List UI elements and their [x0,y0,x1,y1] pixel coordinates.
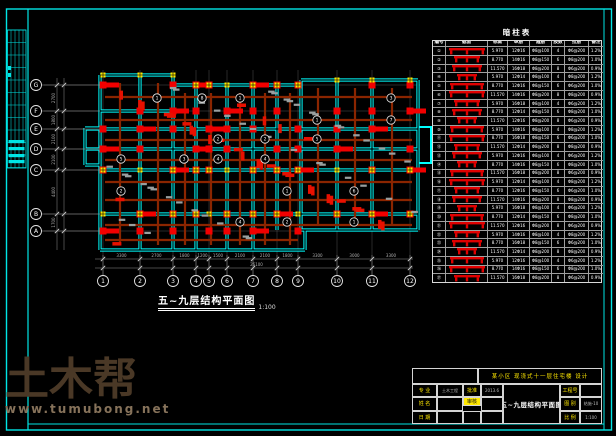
schedule-cell [446,274,488,282]
svg-text:6: 6 [353,189,356,195]
schedule-cell: Φ8@200 [565,143,589,152]
section-shape [452,65,482,72]
schedule-cell: 8.770 [488,266,508,275]
schedule-cell: 4 [552,47,565,56]
schedule-cell: 16Φ18 [508,135,530,144]
schedule-cell: Φ6@200 [565,222,589,231]
schedule-cell: Φ8@200 [530,274,552,282]
schedule-row: ⑯5.97012Φ14Φ8@1004Φ8@2001.2% [433,178,601,187]
schedule-cell: ② [433,56,446,65]
schedule-row: ⑧8.77012Φ14Φ8@1506Φ8@2001.0% [433,108,601,117]
title-block-cell: 2013.6 [481,384,503,397]
schedule-cell [446,161,488,170]
schedule-cell: 0.9% [589,91,603,100]
schedule-cell: Φ8@200 [530,222,552,231]
schedule-cell: Φ8@100 [530,204,552,213]
title-block-cell: 土木工程 [437,384,463,397]
schedule-cell [446,187,488,196]
schedule-cell [446,91,488,100]
schedule-cell: ⑤ [433,82,446,91]
section-shape [452,109,482,116]
section-shape [454,187,480,194]
schedule-cell: 8 [552,196,565,205]
section-shape [454,144,480,151]
watermark-brand: 土木帮 [5,358,170,402]
title-block-cell [580,384,602,397]
schedule-row: ⑳8.77012Φ14Φ8@1506Φ8@2001.0% [433,213,601,222]
svg-text:3300: 3300 [312,253,323,258]
watermark: 土木帮 www.tumubong.net [5,358,170,415]
schedule-cell: 8 [552,117,565,126]
schedule-cell: Φ6@200 [565,170,589,179]
schedule-cell: 8.770 [488,187,508,196]
schedule-cell: ㉒ [433,231,446,240]
schedule-row: ④5.97012Φ14Φ8@1004Φ8@2001.2% [433,73,601,82]
schedule-cell: 1.2% [589,178,603,187]
svg-text:4: 4 [264,157,267,163]
section-shape [450,214,484,221]
title-block-cell: 结施-10 [580,397,602,410]
schedule-cell: Φ6@200 [565,257,589,266]
svg-text:4400: 4400 [51,186,56,197]
schedule-cell: Φ8@100 [530,47,552,56]
title-block-cell: 图 别 [560,397,580,410]
svg-text:C: C [34,167,38,174]
svg-text:9: 9 [296,278,300,285]
schedule-cell [446,135,488,144]
schedule-cell: 8.770 [488,239,508,248]
svg-text:2700: 2700 [51,92,56,103]
schedule-cell [446,65,488,74]
svg-text:1800: 1800 [282,253,293,258]
schedule-cell: ⑯ [433,178,446,187]
schedule-cell: 5.970 [488,73,508,82]
schedule-row: ⑱11.57014Φ16Φ8@2008Φ8@2000.9% [433,196,601,205]
schedule-cell: 11.570 [488,170,508,179]
schedule-cell: ⑦ [433,100,446,109]
schedule-cell [446,248,488,257]
schedule-cell: 14Φ16 [508,196,530,205]
section-shape [449,179,485,186]
schedule-cell [446,108,488,117]
svg-text:4: 4 [217,157,220,163]
schedule-table: 编号截面标高纵筋箍筋肢数拉筋备注①5.97012Φ16Φ8@1004Φ6@200… [432,40,602,283]
schedule-cell [446,204,488,213]
schedule-cell: ① [433,47,446,56]
schedule-cell: Φ8@100 [530,178,552,187]
schedule-cell: ⑮ [433,170,446,179]
schedule-cell: 11.570 [488,143,508,152]
schedule-cell: 1.2% [589,126,603,135]
schedule-cell: Φ6@200 [565,152,589,161]
schedule-cell: 11.570 [488,117,508,126]
schedule-row: ⑪8.77016Φ18Φ8@1506Φ6@2001.0% [433,135,601,144]
schedule-cell: 11.570 [488,65,508,74]
schedule-cell: ⑧ [433,108,446,117]
schedule-row: ⑬5.97012Φ16Φ8@1004Φ6@2001.2% [433,152,601,161]
svg-text:1: 1 [316,118,319,124]
schedule-cell: Φ8@150 [530,82,552,91]
section-shape [457,161,477,168]
section-shape [454,231,480,238]
schedule-cell: Φ8@150 [530,266,552,275]
schedule-cell: Φ8@150 [530,108,552,117]
schedule-cell [446,257,488,266]
schedule-cell: 0.9% [589,143,603,152]
schedule-cell: Φ8@200 [565,231,589,240]
title-block-cell: 审核 [463,397,481,406]
schedule-cell: ③ [433,65,446,74]
svg-text:2: 2 [286,220,289,226]
schedule-cell: 6 [552,108,565,117]
svg-text:1800: 1800 [179,253,190,258]
schedule-cell: Φ8@200 [530,117,552,126]
title-block-blank [412,368,478,384]
schedule-cell: 12Φ16 [508,117,530,126]
svg-text:6: 6 [225,278,229,285]
svg-text:2: 2 [120,189,123,195]
title-block-cell [481,411,503,424]
dimension-layer: 3300270018001200150021002100180033003000… [51,78,413,270]
section-shape [452,152,482,159]
schedule-cell: 8.770 [488,213,508,222]
schedule-cell [446,239,488,248]
schedule-cell: 1.0% [589,108,603,117]
schedule-cell [446,143,488,152]
schedule-row: ㉗11.57016Φ18Φ8@2008Φ6@2000.9% [433,274,601,282]
title-block-cell: 1:100 [580,411,602,424]
schedule-cell: ㉔ [433,248,446,257]
schedule-cell: Φ8@150 [530,56,552,65]
schedule-cell: Φ8@100 [530,231,552,240]
schedule-cell [446,56,488,65]
schedule-cell: 11.570 [488,91,508,100]
schedule-cell: ⑬ [433,152,446,161]
schedule-cell: ⑱ [433,196,446,205]
section-shape [449,222,485,229]
schedule-row: ⑰8.77012Φ16Φ8@1506Φ6@2001.0% [433,187,601,196]
svg-text:1: 1 [286,189,289,195]
svg-text:7: 7 [251,278,255,285]
schedule-cell: 0.9% [589,65,603,74]
schedule-cell: ⑫ [433,143,446,152]
svg-text:26100: 26100 [250,262,263,267]
schedule-cell: Φ8@200 [565,248,589,257]
schedule-cell: Φ8@100 [530,126,552,135]
schedule-cell: ⑩ [433,126,446,135]
schedule-cell: ㉗ [433,274,446,282]
section-shape [450,257,484,264]
svg-text:2: 2 [217,137,220,143]
schedule-row: ㉒5.97014Φ16Φ8@1004Φ8@2001.2% [433,231,601,240]
schedule-cell: 12Φ14 [508,213,530,222]
schedule-cell: 1.0% [589,82,603,91]
schedule-row: ⑦5.97016Φ18Φ8@1004Φ6@2001.2% [433,100,601,109]
schedule-cell: Φ8@200 [565,91,589,100]
schedule-cell: ㉖ [433,266,446,275]
svg-text:D: D [34,146,39,153]
schedule-cell [446,196,488,205]
schedule-cell: 5.970 [488,231,508,240]
schedule-cell: 4 [552,126,565,135]
schedule-cell [446,47,488,56]
schedule-cell: 16Φ18 [508,204,530,213]
schedule-cell: Φ8@200 [565,108,589,117]
schedule-cell: 4 [552,73,565,82]
schedule-row: ㉓8.77016Φ18Φ8@1506Φ6@2001.0% [433,239,601,248]
schedule-cell: 1.2% [589,152,603,161]
schedule-cell: 6 [552,82,565,91]
schedule-cell: 1.0% [589,266,603,275]
schedule-cell: 6 [552,161,565,170]
schedule-cell: 14Φ16 [508,231,530,240]
svg-text:2700: 2700 [151,253,162,258]
schedule-cell: 8 [552,143,565,152]
schedule-cell: ⑨ [433,117,446,126]
schedule-cell: Φ8@150 [530,161,552,170]
svg-text:8: 8 [201,96,204,102]
plan-title: 五~九层结构平面图 [158,292,255,311]
schedule-cell: 8.770 [488,108,508,117]
schedule-cell: 1.0% [589,56,603,65]
svg-text:2: 2 [138,278,142,285]
section-shape [457,117,477,124]
schedule-cell [446,231,488,240]
schedule-cell [446,266,488,275]
schedule-cell: Φ8@200 [530,248,552,257]
schedule-row: ②8.77014Φ16Φ8@1506Φ8@2001.0% [433,56,601,65]
marker-layer [101,73,413,217]
schedule-row: ①5.97012Φ16Φ8@1004Φ6@2001.2% [433,47,601,56]
svg-text:3: 3 [390,96,393,102]
section-shape [452,240,482,247]
schedule-cell: 6 [552,266,565,275]
schedule-cell: 12Φ16 [508,187,530,196]
title-block-cell [463,411,481,424]
svg-text:10: 10 [333,278,341,285]
svg-text:3: 3 [171,278,175,285]
schedule-cell [446,213,488,222]
schedule-cell: 1.2% [589,231,603,240]
svg-text:1500: 1500 [213,253,224,258]
schedule-cell: 0.9% [589,222,603,231]
svg-text:3300: 3300 [116,253,127,258]
section-shape [452,196,482,203]
svg-text:3: 3 [183,157,186,163]
schedule-cell: 0.9% [589,248,603,257]
schedule-cell: 8 [552,65,565,74]
schedule-cell: Φ6@200 [565,239,589,248]
schedule-cell: ⑭ [433,161,446,170]
schedule-cell: 1.2% [589,73,603,82]
drawing-name: 五~九层结构平面图 [503,384,560,424]
schedule-cell: 6 [552,56,565,65]
section-shape [457,205,477,212]
schedule-cell [446,126,488,135]
schedule-cell: 8 [552,248,565,257]
svg-text:1: 1 [239,96,242,102]
schedule-cell: 6 [552,187,565,196]
schedule-cell: 12Φ16 [508,257,530,266]
schedule-cell: Φ6@200 [565,117,589,126]
svg-text:5: 5 [120,157,123,163]
schedule-cell: Φ6@200 [565,204,589,213]
title-block-cell [481,397,503,410]
schedule-cell: Φ8@200 [565,178,589,187]
title-block-cell: 姓 名 [412,397,437,410]
schedule-cell: 16Φ18 [508,274,530,282]
svg-text:2: 2 [264,137,267,143]
schedule-cell: 11.570 [488,274,508,282]
svg-text:1: 1 [101,278,105,285]
schedule-cell: 8.770 [488,82,508,91]
svg-text:E: E [34,126,38,133]
svg-text:11: 11 [368,278,376,285]
schedule-cell: Φ8@150 [530,239,552,248]
schedule-cell: Φ8@100 [530,257,552,266]
schedule-cell: Φ8@200 [565,213,589,222]
schedule-cell: 14Φ16 [508,91,530,100]
svg-text:4: 4 [194,278,198,285]
svg-text:F: F [34,108,38,115]
schedule-cell: 8 [552,222,565,231]
schedule-cell: 8 [552,91,565,100]
schedule-cell: ⑰ [433,187,446,196]
svg-text:3300: 3300 [386,253,397,258]
schedule-cell [446,82,488,91]
title-block-cell: 日 期 [412,411,437,424]
schedule-cell: 12Φ14 [508,248,530,257]
schedule-cell: Φ8@200 [530,65,552,74]
schedule-cell [446,222,488,231]
schedule-row: ⑭8.77014Φ16Φ8@1506Φ8@2001.0% [433,161,601,170]
schedule-cell: ⑳ [433,213,446,222]
schedule-cell: 1.0% [589,239,603,248]
schedule-cell: ⑲ [433,204,446,213]
schedule-cell: Φ8@100 [530,152,552,161]
schedule-cell: 4 [552,152,565,161]
plan-caption: 五~九层结构平面图 1:100 [158,292,276,311]
schedule-cell: 8.770 [488,161,508,170]
schedule-cell: Φ8@200 [565,126,589,135]
schedule-cell: Φ8@200 [565,161,589,170]
svg-text:2100: 2100 [235,253,246,258]
svg-text:1800: 1800 [51,114,56,125]
section-shape [454,100,480,107]
schedule-cell: Φ6@200 [565,47,589,56]
schedule-cell [446,170,488,179]
title-block-cell: 比 例 [560,411,580,424]
section-shape [449,135,485,142]
svg-text:7: 7 [390,118,393,124]
schedule-cell: Φ8@150 [530,213,552,222]
svg-text:2100: 2100 [260,253,271,258]
schedule-cell: ㉕ [433,257,446,266]
title-block-cell: 工程号 [560,384,580,397]
plan-scale: 1:100 [258,304,275,311]
schedule-cell: ⑥ [433,91,446,100]
svg-text:12: 12 [406,278,414,285]
schedule-cell: Φ6@200 [565,187,589,196]
schedule-cell: 0.9% [589,170,603,179]
schedule-cell: Φ8@200 [530,91,552,100]
drawing-sheet: 3300270018001200150021002100180033003000… [0,0,616,436]
schedule-cell [446,117,488,126]
svg-text:1700: 1700 [51,217,56,228]
schedule-cell [446,152,488,161]
schedule-cell: 5.970 [488,204,508,213]
schedule-cell: Φ8@200 [565,56,589,65]
schedule-cell: 16Φ18 [508,100,530,109]
watermark-url: www.tumubong.net [5,403,170,415]
schedule-cell: 1.0% [589,187,603,196]
schedule-cell: 4 [552,257,565,266]
schedule-cell: 16Φ18 [508,170,530,179]
schedule-cell: 5.970 [488,178,508,187]
schedule-cell: 8.770 [488,56,508,65]
schedule-cell: 1.0% [589,135,603,144]
svg-text:B: B [34,211,38,218]
schedule-cell: 1.2% [589,100,603,109]
schedule-cell: 8.770 [488,135,508,144]
schedule-cell: 12Φ16 [508,222,530,231]
schedule-cell: 4 [552,178,565,187]
svg-text:5: 5 [316,137,319,143]
schedule-row: ㉔11.57012Φ14Φ8@2008Φ8@2000.9% [433,248,601,257]
schedule-cell: 14Φ16 [508,266,530,275]
schedule-cell: 11.570 [488,196,508,205]
schedule-cell: 5.970 [488,257,508,266]
schedule-cell: 5.970 [488,47,508,56]
schedule-cell [446,178,488,187]
schedule-cell: 4 [552,204,565,213]
schedule-cell: Φ8@200 [530,143,552,152]
svg-text:4: 4 [239,220,242,226]
svg-text:2100: 2100 [51,133,56,144]
schedule-row: ③11.57016Φ18Φ8@2008Φ6@2000.9% [433,65,601,74]
schedule-cell: 12Φ14 [508,143,530,152]
project-name: 某小区 现浇式十一层住宅楼 设计 [478,368,602,384]
title-block-cell [437,397,463,410]
section-shape [450,83,484,90]
schedule-cell: 14Φ16 [508,126,530,135]
schedule-cell: 11.570 [488,222,508,231]
schedule-cell: 0.9% [589,196,603,205]
schedule-row: ⑥11.57014Φ16Φ8@2008Φ8@2000.9% [433,91,601,100]
section-shape [457,248,477,255]
schedule-cell: 0.9% [589,117,603,126]
schedule-title: 暗柱表 [432,27,602,38]
left-strip [8,30,27,168]
schedule-cell: Φ8@200 [565,196,589,205]
schedule-row: ⑫11.57012Φ14Φ8@2008Φ8@2000.9% [433,143,601,152]
svg-text:2100: 2100 [51,154,56,165]
schedule-cell: 12Φ14 [508,178,530,187]
schedule-cell: Φ6@200 [565,135,589,144]
schedule-cell: 8 [552,274,565,282]
section-shape [454,56,480,63]
title-block-cell [437,411,463,424]
title-block-cell: 批准 [463,384,481,397]
section-shape [450,126,484,133]
schedule-cell [446,73,488,82]
schedule-cell: 0.9% [589,274,603,282]
schedule-cell: Φ6@200 [565,82,589,91]
section-shape [454,275,480,282]
schedule-cell: 14Φ16 [508,161,530,170]
section-shape [457,74,477,81]
schedule-cell: 16Φ18 [508,65,530,74]
